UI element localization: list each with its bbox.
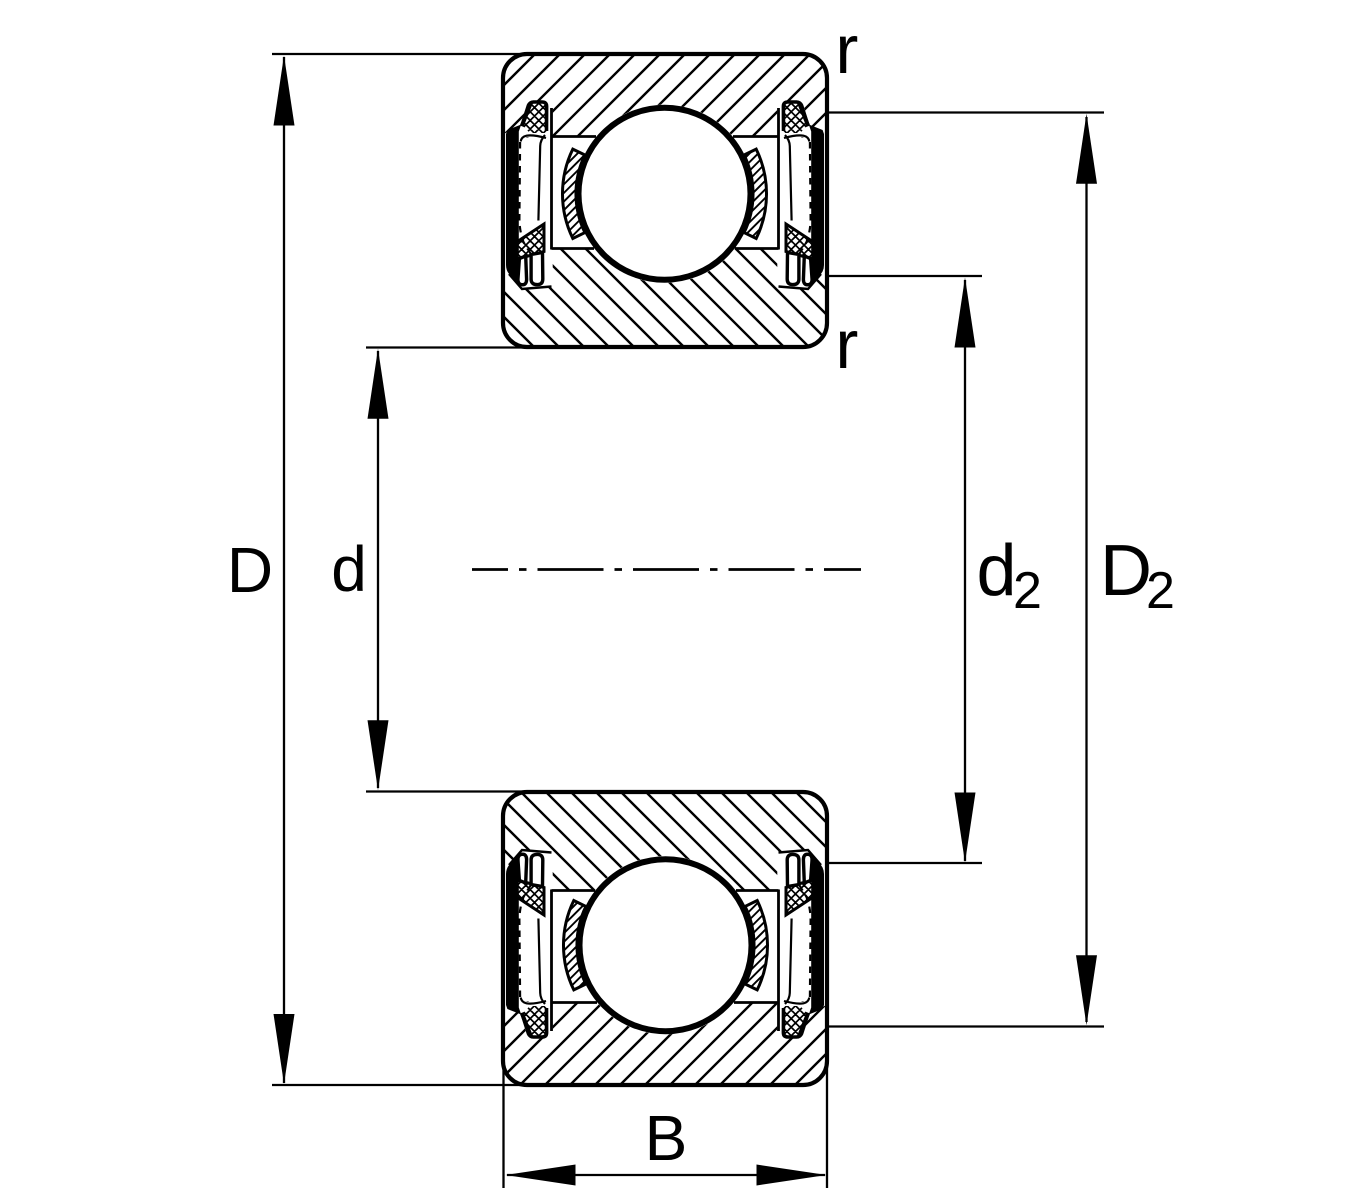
- svg-text:d: d: [331, 533, 367, 605]
- svg-text:d: d: [977, 531, 1017, 611]
- svg-text:r: r: [835, 11, 858, 88]
- svg-text:2: 2: [1146, 562, 1175, 620]
- svg-text:r: r: [835, 306, 858, 383]
- svg-text:D: D: [1100, 531, 1152, 611]
- svg-text:D: D: [227, 534, 273, 606]
- svg-text:2: 2: [1013, 562, 1042, 620]
- svg-text:B: B: [645, 1102, 688, 1174]
